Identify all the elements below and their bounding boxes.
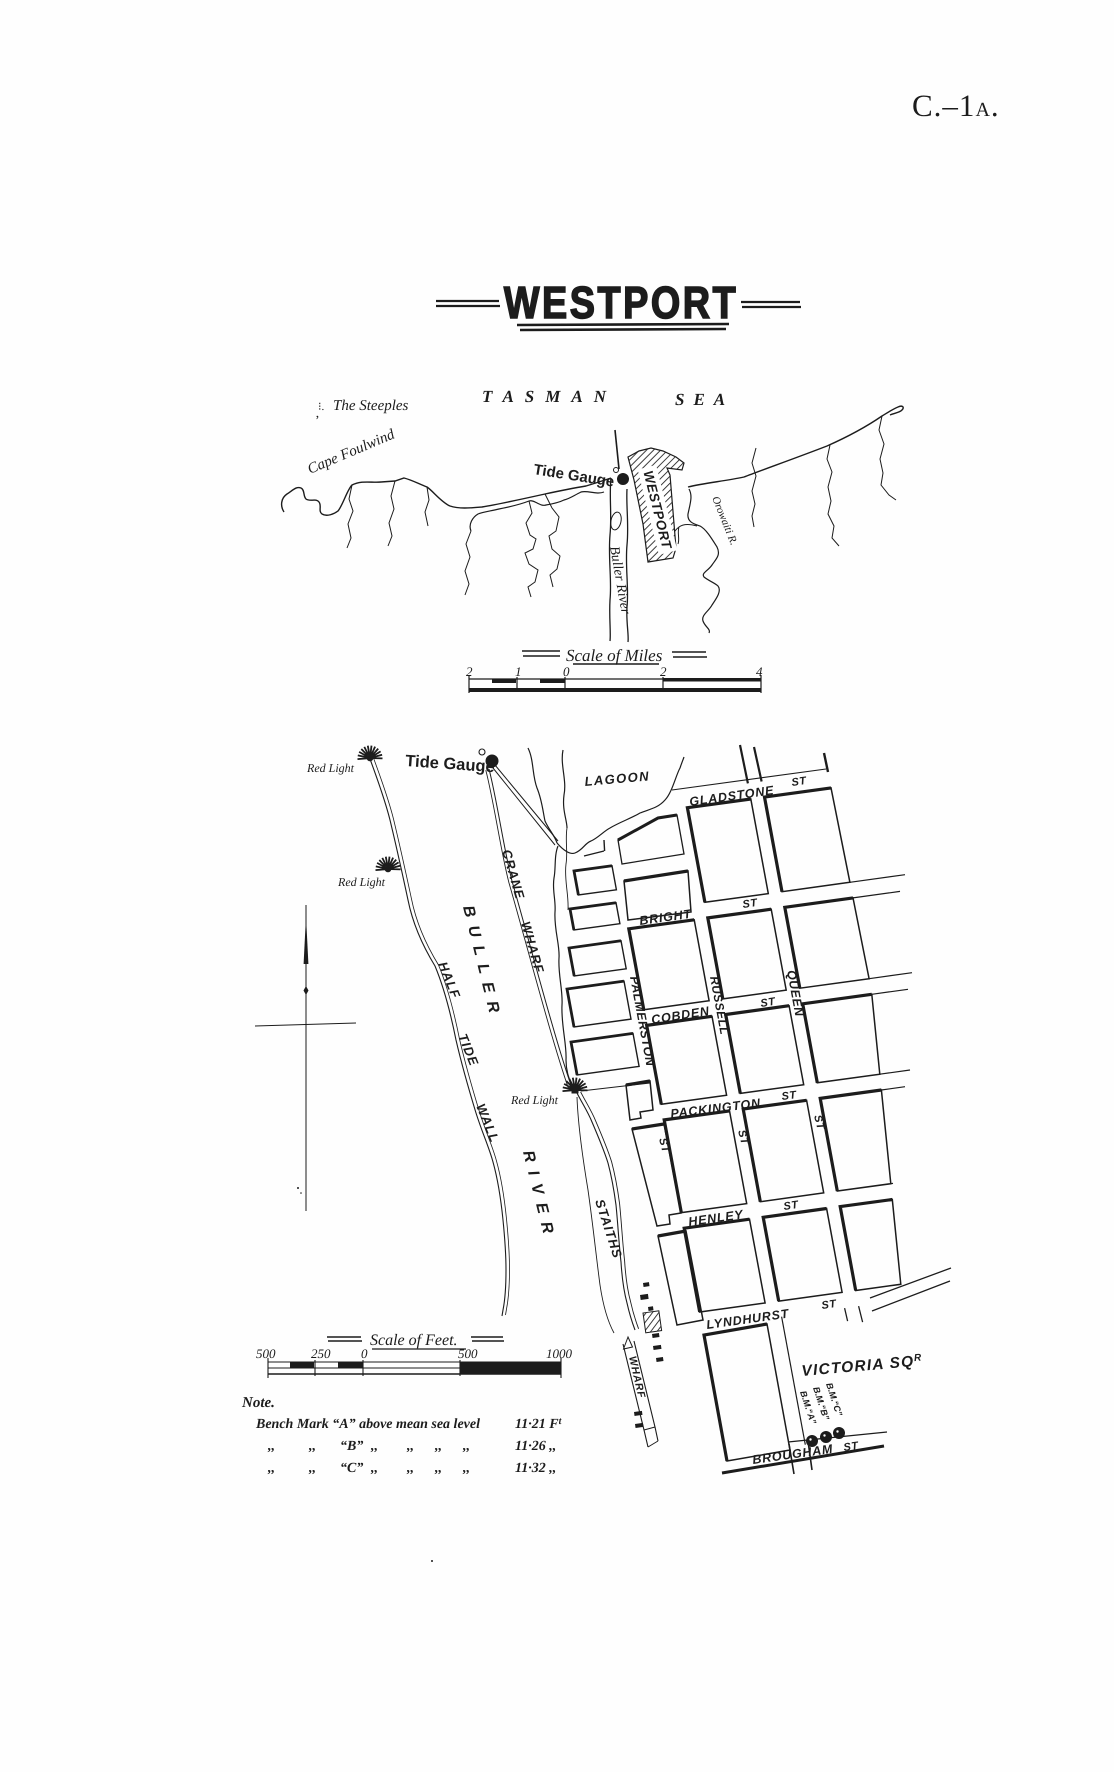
svg-text:11·32 ,,: 11·32 ,, <box>515 1461 556 1476</box>
svg-text:,,: ,, <box>462 1461 470 1476</box>
svg-text:ST: ST <box>742 897 759 911</box>
svg-text:STAITHS: STAITHS <box>592 1197 625 1260</box>
svg-text:,,: ,, <box>370 1461 378 1476</box>
svg-text:C.–1A.: C.–1A. <box>912 88 1000 123</box>
svg-text:BULLER: BULLER <box>459 904 504 1023</box>
svg-text:’: ’ <box>315 414 320 429</box>
svg-text:WHARF: WHARF <box>626 1355 647 1400</box>
svg-text:QUEEN: QUEEN <box>784 969 806 1018</box>
svg-text:,,: ,, <box>308 1461 316 1476</box>
svg-text:11·26 ,,: 11·26 ,, <box>515 1439 556 1454</box>
svg-text:“B”: “B” <box>340 1439 363 1454</box>
svg-text:4: 4 <box>756 664 763 679</box>
svg-text:Cape Foulwind: Cape Foulwind <box>305 426 397 477</box>
svg-text:Red Light: Red Light <box>510 1093 559 1107</box>
svg-text:ST: ST <box>821 1298 838 1312</box>
svg-text:11·21 Ft: 11·21 Ft <box>515 1416 563 1432</box>
svg-text:,,: ,, <box>406 1461 414 1476</box>
svg-text:,,: ,, <box>267 1461 275 1476</box>
svg-text:LAGOON: LAGOON <box>584 768 651 789</box>
svg-text:GLADSTONE: GLADSTONE <box>688 783 775 809</box>
svg-text:,,: ,, <box>434 1439 442 1454</box>
svg-text:“C”: “C” <box>340 1461 363 1476</box>
svg-text:,,: ,, <box>370 1439 378 1454</box>
svg-text:,,: ,, <box>406 1439 414 1454</box>
svg-text:1000: 1000 <box>546 1346 573 1361</box>
svg-text:WALL: WALL <box>473 1102 502 1145</box>
svg-text:VICTORIA SQR: VICTORIA SQR <box>801 1352 924 1380</box>
svg-text:TIDE: TIDE <box>455 1032 482 1069</box>
svg-text:250: 250 <box>311 1346 331 1361</box>
svg-text:SEA: SEA <box>675 390 734 409</box>
svg-text:Note.: Note. <box>241 1395 275 1411</box>
svg-text:2: 2 <box>660 664 667 679</box>
svg-text:Tide Gauge: Tide Gauge <box>532 461 615 491</box>
svg-text:Bench Mark “A” above mean sea: Bench Mark “A” above mean sea level <box>255 1417 480 1432</box>
svg-text:ST: ST <box>843 1440 860 1454</box>
svg-text:ST: ST <box>760 996 778 1010</box>
svg-text:0: 0 <box>563 664 570 679</box>
svg-text:Scale of Miles: Scale of Miles <box>566 646 663 665</box>
svg-text:CRANE: CRANE <box>499 848 528 901</box>
svg-text:HALF: HALF <box>435 960 463 1002</box>
svg-text:,,: ,, <box>434 1461 442 1476</box>
svg-text:,,: ,, <box>308 1439 316 1454</box>
svg-text:,,: ,, <box>462 1439 470 1454</box>
svg-text:ST: ST <box>783 1199 800 1213</box>
svg-text:WHARF: WHARF <box>518 920 547 975</box>
svg-text:Scale of Feet.: Scale of Feet. <box>370 1332 458 1349</box>
svg-text:RIVER: RIVER <box>519 1149 558 1244</box>
svg-text:Orowaiti R.: Orowaiti R. <box>709 495 739 547</box>
svg-text:,,: ,, <box>267 1439 275 1454</box>
svg-text:⁝.: ⁝. <box>318 401 324 413</box>
svg-text:ST: ST <box>781 1089 798 1103</box>
svg-text:500: 500 <box>458 1346 478 1361</box>
svg-text:ST: ST <box>791 775 808 789</box>
svg-text:Tide Gauge: Tide Gauge <box>405 752 496 776</box>
svg-text:Red Light: Red Light <box>337 875 386 889</box>
svg-text:500: 500 <box>256 1346 276 1361</box>
svg-text:RUSSELL: RUSSELL <box>707 975 732 1036</box>
svg-text:1: 1 <box>515 664 522 679</box>
svg-text:The Steeples: The Steeples <box>333 398 409 414</box>
svg-text:TASMAN: TASMAN <box>482 387 617 406</box>
svg-text:0: 0 <box>361 1346 368 1361</box>
svg-text:PACKINGTON: PACKINGTON <box>670 1096 762 1121</box>
svg-text:WESTPORT: WESTPORT <box>504 277 738 328</box>
svg-text:Red Light: Red Light <box>306 761 355 775</box>
